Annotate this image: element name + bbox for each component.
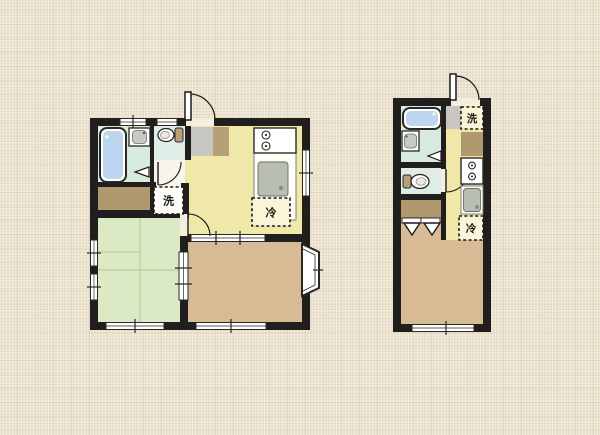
closet [401, 200, 441, 218]
toilet [403, 175, 429, 189]
front-door [450, 74, 480, 106]
window-top-toilet [157, 119, 177, 126]
fridge-label: 冷 [266, 206, 277, 220]
washer-space: 洗 [154, 187, 183, 214]
closet [98, 186, 152, 212]
front-door [185, 92, 215, 126]
stove [461, 158, 483, 184]
genkan-floor [190, 127, 213, 156]
fridge-space: 冷 [252, 198, 290, 226]
kitchen-counter-block [461, 132, 483, 156]
left-floor-plan: 冷 洗 [87, 92, 323, 333]
floor-plans-svg: 冷 洗 [0, 0, 600, 430]
genkan-step [213, 127, 229, 156]
washer-label: 洗 [163, 194, 174, 208]
right-floor-plan: 洗 冷 [393, 74, 491, 335]
washer-label: 洗 [467, 112, 478, 125]
fridge-space: 冷 [459, 216, 483, 240]
bathtub [403, 108, 441, 129]
stove [254, 128, 296, 153]
genkan-floor [446, 106, 461, 129]
washer-space: 洗 [461, 107, 483, 129]
toilet-door-opening [441, 169, 446, 192]
tatami-door-opening [180, 214, 188, 236]
fridge-label: 冷 [466, 222, 477, 235]
floor-plan-canvas: 冷 洗 [0, 0, 600, 430]
bay-window [302, 244, 323, 296]
bath-sink [402, 131, 419, 151]
bathtub [100, 128, 126, 182]
kitchen-sink [258, 162, 288, 196]
bath-sink [129, 128, 150, 146]
wood-room-floor [188, 242, 302, 322]
kitchen-sink [461, 186, 483, 214]
toilet [158, 128, 183, 142]
